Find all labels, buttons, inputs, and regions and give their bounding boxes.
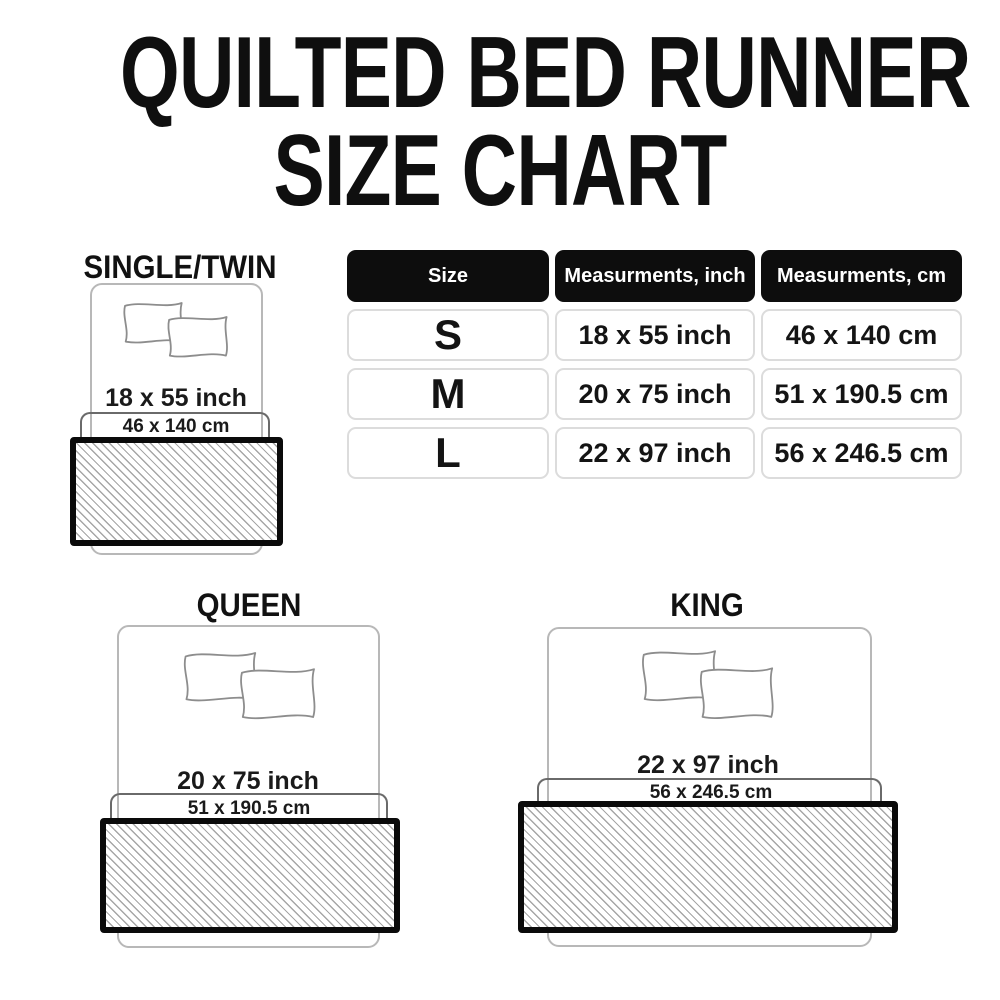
col-header-inch: Measurments, inch	[555, 250, 755, 302]
size-cell-m: M	[347, 368, 549, 420]
size-cell-s: S	[347, 309, 549, 361]
runner-size-cm-single: 46 x 140 cm	[96, 416, 256, 438]
cm-cell-l: 56 x 246.5 cm	[761, 427, 962, 479]
size-chart-infographic: QUILTED BED RUNNER SIZE CHART SINGLE/TWI…	[0, 0, 1000, 1000]
bed-runner-king	[518, 801, 898, 933]
col-header-size: Size	[347, 250, 549, 302]
runner-size-inch-single: 18 x 55 inch	[76, 384, 276, 413]
inch-cell-l: 22 x 97 inch	[555, 427, 755, 479]
runner-size-inch-queen: 20 x 75 inch	[148, 767, 348, 796]
title-line-2: SIZE CHART	[120, 122, 880, 220]
bed-runner-single	[70, 437, 283, 546]
cm-cell-m: 51 x 190.5 cm	[761, 368, 962, 420]
section-label-single-twin: SINGLE/TWIN	[42, 249, 318, 286]
runner-size-inch-king: 22 x 97 inch	[608, 751, 808, 780]
pillow-icon	[233, 663, 322, 725]
size-table: Size Measurments, inch Measurments, cm S…	[347, 250, 962, 479]
page-title: QUILTED BED RUNNER SIZE CHART	[0, 24, 1000, 220]
size-cell-l: L	[347, 427, 549, 479]
inch-cell-m: 20 x 75 inch	[555, 368, 755, 420]
section-label-queen: QUEEN	[111, 587, 387, 624]
runner-size-cm-queen: 51 x 190.5 cm	[169, 798, 329, 820]
bed-runner-queen	[100, 818, 400, 933]
cm-cell-s: 46 x 140 cm	[761, 309, 962, 361]
section-label-king: KING	[569, 587, 845, 624]
pillow-icon	[693, 662, 780, 725]
title-line-1: QUILTED BED RUNNER	[120, 24, 880, 122]
inch-cell-s: 18 x 55 inch	[555, 309, 755, 361]
col-header-cm: Measurments, cm	[761, 250, 962, 302]
pillow-icon	[162, 312, 233, 362]
